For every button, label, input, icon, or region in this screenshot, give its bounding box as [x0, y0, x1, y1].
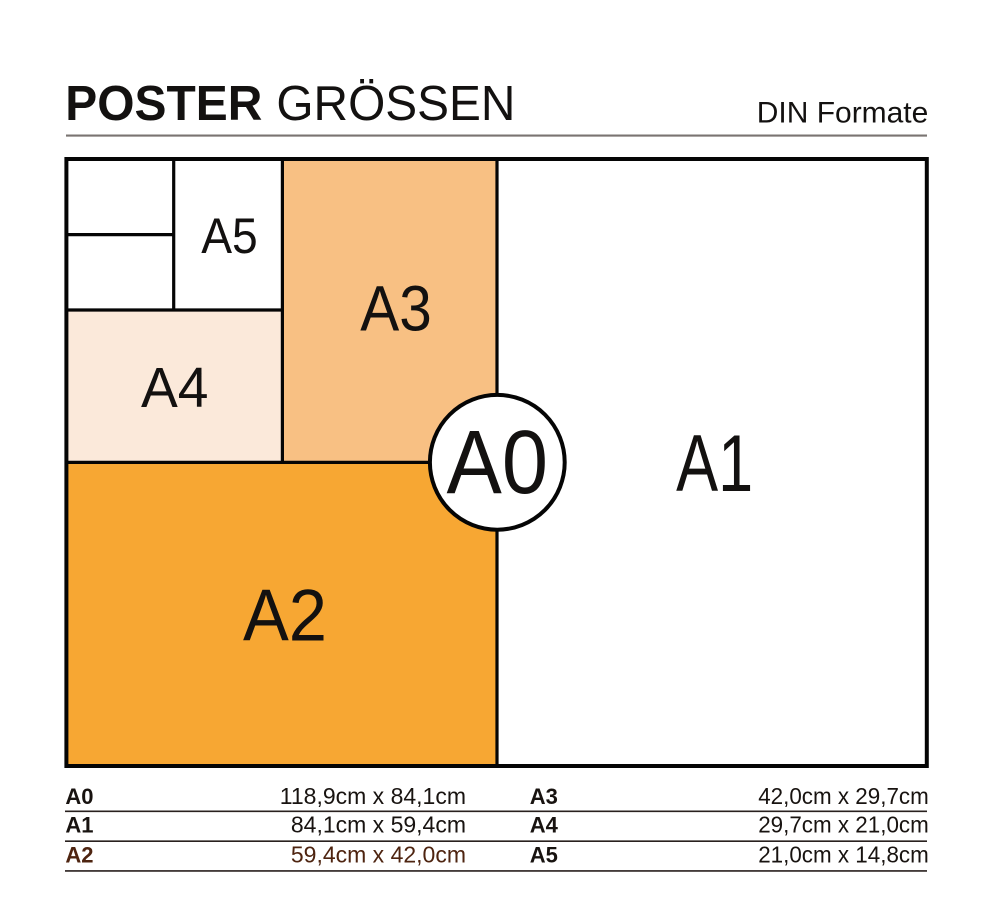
- svg-text:118,9cm x 84,1cm: 118,9cm x 84,1cm: [280, 783, 466, 809]
- svg-text:POSTER: POSTER: [65, 76, 262, 131]
- svg-text:A0: A0: [447, 413, 549, 513]
- svg-text:A3: A3: [530, 784, 558, 809]
- svg-text:A4: A4: [141, 356, 209, 419]
- svg-text:A1: A1: [65, 813, 93, 838]
- svg-text:A4: A4: [530, 813, 559, 838]
- svg-text:84,1cm x 59,4cm: 84,1cm x 59,4cm: [291, 812, 466, 838]
- svg-text:GRÖSSEN: GRÖSSEN: [276, 76, 515, 131]
- svg-text:42,0cm x 29,7cm: 42,0cm x 29,7cm: [758, 783, 929, 809]
- svg-text:21,0cm x 14,8cm: 21,0cm x 14,8cm: [758, 842, 929, 868]
- svg-text:A5: A5: [530, 843, 558, 868]
- svg-text:A0: A0: [65, 784, 93, 809]
- svg-text:A2: A2: [243, 575, 327, 656]
- svg-text:29,7cm x 21,0cm: 29,7cm x 21,0cm: [758, 812, 929, 838]
- svg-text:A5: A5: [201, 208, 258, 264]
- svg-text:A1: A1: [676, 419, 753, 509]
- svg-text:DIN Formate: DIN Formate: [757, 97, 929, 130]
- svg-text:59,4cm x 42,0cm: 59,4cm x 42,0cm: [291, 842, 466, 868]
- svg-text:A2: A2: [65, 843, 93, 868]
- svg-text:A3: A3: [360, 273, 432, 345]
